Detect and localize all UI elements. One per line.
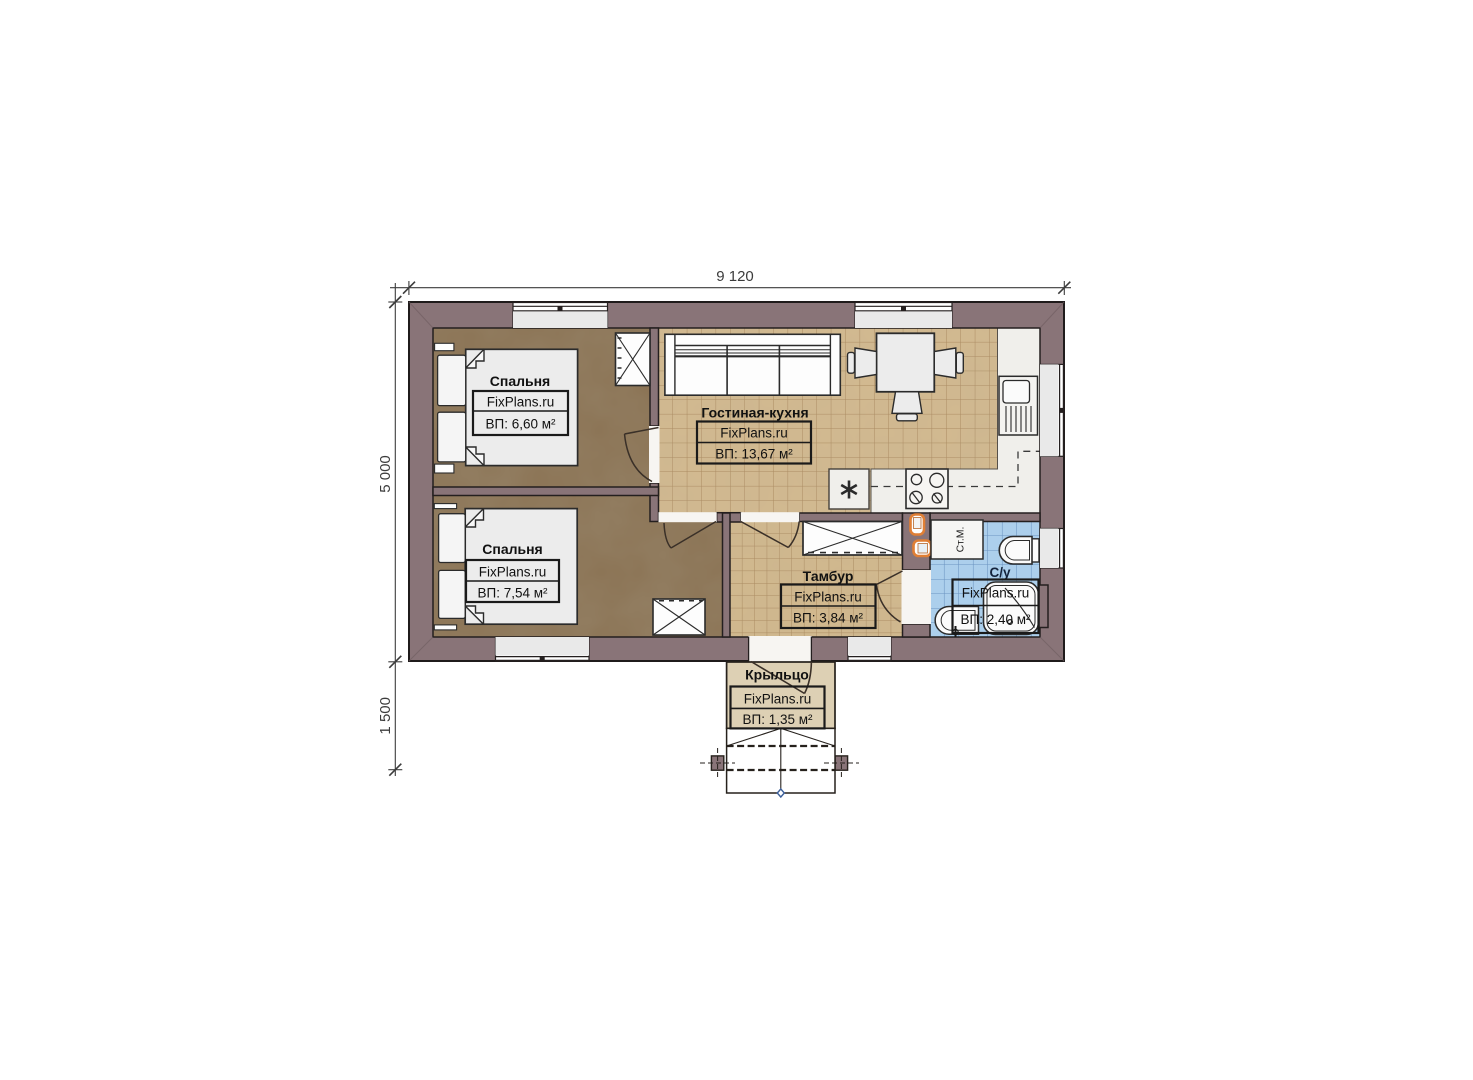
- svg-text:1 500: 1 500: [377, 697, 394, 735]
- svg-text:ВП: 7,54 м²: ВП: 7,54 м²: [477, 586, 548, 601]
- svg-text:5 000: 5 000: [377, 455, 394, 493]
- svg-text:ВП: 1,35 м²: ВП: 1,35 м²: [742, 712, 813, 727]
- svg-text:С/у: С/у: [989, 565, 1011, 580]
- svg-text:ВП: 2,40 м²: ВП: 2,40 м²: [960, 612, 1031, 627]
- svg-text:Ст.М.: Ст.М.: [954, 527, 966, 553]
- svg-text:ВП: 3,84 м²: ВП: 3,84 м²: [793, 611, 864, 626]
- svg-text:Гостиная-кухня: Гостиная-кухня: [701, 405, 808, 421]
- svg-text:ВП: 6,60 м²: ВП: 6,60 м²: [485, 417, 556, 432]
- svg-text:FixPlans.ru: FixPlans.ru: [794, 590, 862, 605]
- svg-text:9 120: 9 120: [716, 268, 754, 285]
- svg-text:FixPlans.ru: FixPlans.ru: [479, 565, 547, 580]
- svg-text:FixPlans.ru: FixPlans.ru: [744, 692, 812, 707]
- svg-text:FixPlans.ru: FixPlans.ru: [720, 426, 788, 441]
- svg-text:Тамбур: Тамбур: [803, 568, 854, 584]
- svg-text:FixPlans.ru: FixPlans.ru: [962, 586, 1030, 601]
- svg-text:FixPlans.ru: FixPlans.ru: [487, 395, 555, 410]
- svg-text:ВП: 13,67 м²: ВП: 13,67 м²: [715, 447, 793, 462]
- svg-text:Спальня: Спальня: [482, 541, 542, 557]
- svg-text:Спальня: Спальня: [490, 373, 550, 389]
- svg-text:Крыльцо: Крыльцо: [745, 667, 809, 683]
